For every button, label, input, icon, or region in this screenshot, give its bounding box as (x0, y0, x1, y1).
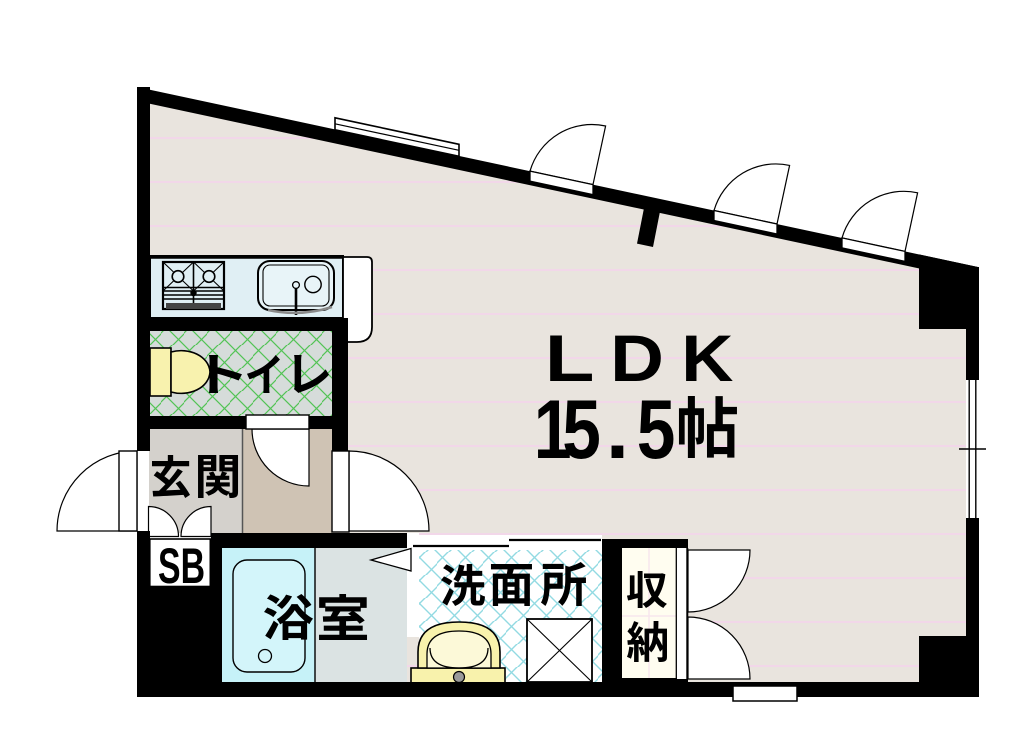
svg-text:5: 5 (637, 384, 676, 476)
svg-text:5: 5 (562, 384, 601, 476)
svg-text:K: K (681, 322, 733, 395)
svg-text:SB: SB (158, 538, 205, 594)
svg-text:.: . (606, 383, 629, 476)
